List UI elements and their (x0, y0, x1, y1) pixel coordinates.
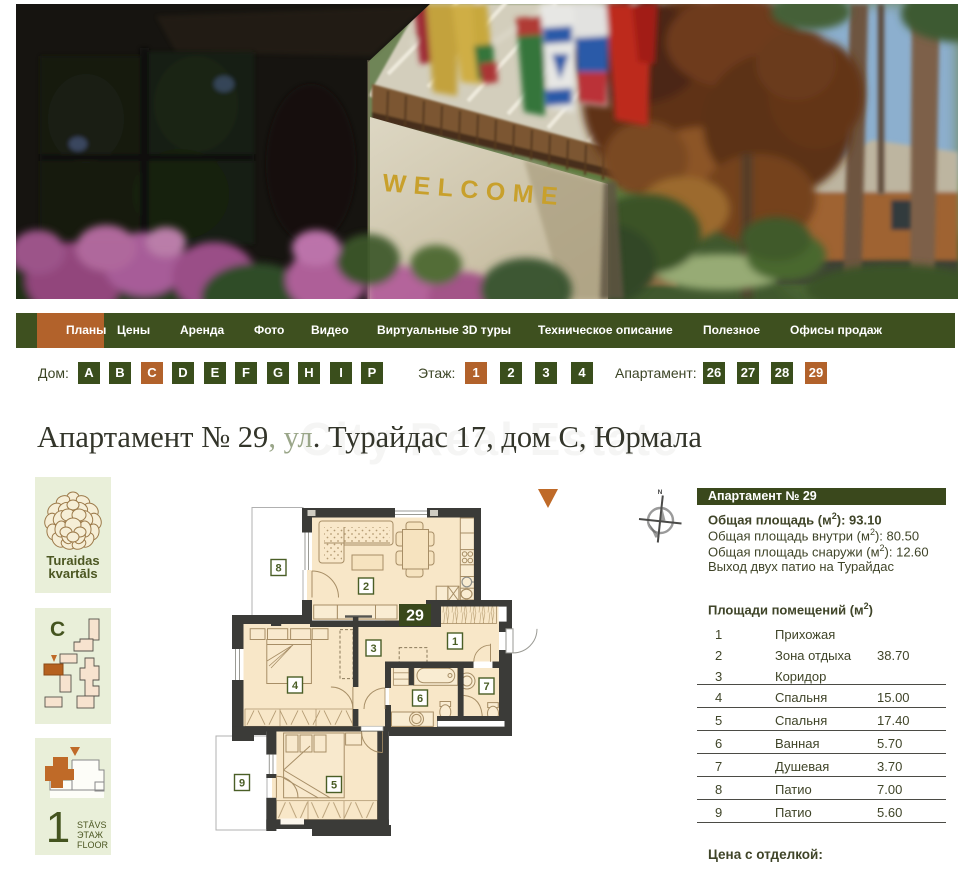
svg-text:1: 1 (46, 803, 70, 852)
svg-text:FLOOR: FLOOR (77, 840, 109, 850)
svg-text:C: C (50, 618, 65, 641)
svg-text:9: 9 (239, 778, 245, 790)
svg-text:4: 4 (292, 680, 299, 692)
svg-text:8: 8 (275, 563, 281, 575)
svg-text:2: 2 (363, 581, 369, 593)
svg-text:1: 1 (452, 636, 458, 648)
svg-text:ЭТАЖ: ЭТАЖ (77, 830, 104, 840)
svg-text:kvartāls: kvartāls (48, 566, 97, 581)
svg-text:7: 7 (483, 681, 489, 693)
svg-text:STĀVS: STĀVS (77, 820, 107, 830)
svg-text:6: 6 (417, 693, 423, 705)
svg-text:5: 5 (331, 780, 337, 792)
svg-text:29: 29 (406, 608, 424, 625)
svg-text:N: N (658, 489, 663, 496)
svg-text:3: 3 (370, 643, 376, 655)
